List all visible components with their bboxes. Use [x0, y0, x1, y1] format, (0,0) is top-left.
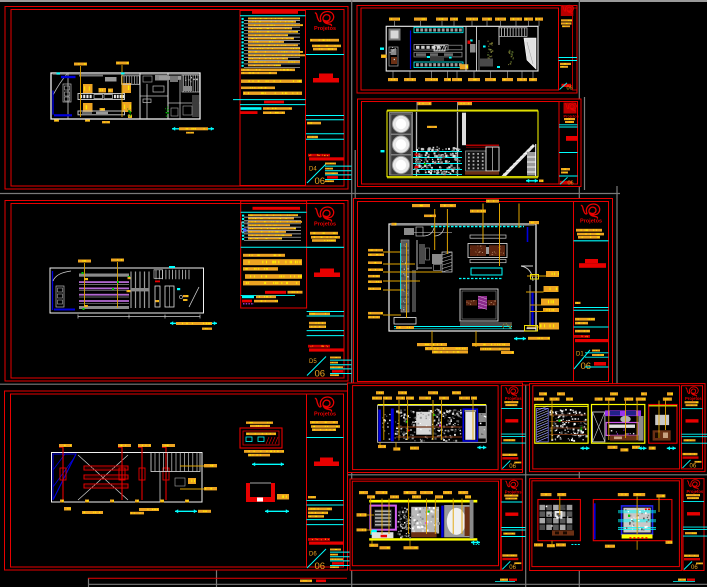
- svg-text:06: 06: [315, 561, 326, 572]
- svg-text:06: 06: [509, 565, 516, 571]
- svg-text:Projetos: Projetos: [314, 412, 336, 418]
- svg-text:Projetos: Projetos: [505, 490, 522, 495]
- svg-text:D1: D1: [576, 352, 584, 358]
- svg-text:Projetos: Projetos: [687, 489, 704, 494]
- svg-text:06: 06: [509, 464, 516, 470]
- svg-text:D4: D4: [309, 167, 317, 173]
- svg-text:Projetos: Projetos: [685, 396, 702, 401]
- svg-text:Projetos: Projetos: [505, 396, 522, 401]
- svg-text:4: 4: [580, 427, 583, 433]
- svg-text:06: 06: [690, 463, 697, 469]
- svg-text:Projetos: Projetos: [314, 222, 336, 228]
- svg-text:06: 06: [568, 180, 574, 186]
- svg-text:D5: D5: [309, 359, 317, 365]
- svg-text:Projetos: Projetos: [314, 26, 336, 32]
- svg-text:Projetos: Projetos: [580, 219, 602, 225]
- svg-text:06: 06: [691, 565, 698, 571]
- svg-text:06: 06: [581, 361, 592, 372]
- svg-text:06: 06: [315, 176, 326, 187]
- svg-text:D6: D6: [309, 552, 317, 558]
- svg-text:06: 06: [567, 86, 573, 92]
- svg-text:Projetos: Projetos: [564, 115, 579, 119]
- svg-text:06: 06: [315, 369, 326, 380]
